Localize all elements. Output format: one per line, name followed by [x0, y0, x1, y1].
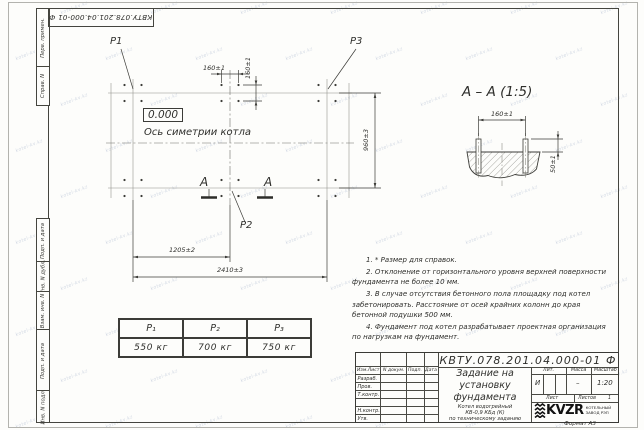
tb-header-podp: Подп. — [408, 368, 422, 373]
tb-header-izm-list: Изм.Лист — [357, 368, 379, 373]
tb-row-utv: Утв. — [358, 416, 369, 422]
company-logo: KVZR КОТЕЛЬНЫЙ ЗАВОД РЭП — [534, 403, 611, 418]
tb-scale-header: Масштаб — [594, 368, 617, 373]
load-point-p1-label: P1 — [110, 36, 122, 47]
kvzr-logo-icon — [534, 403, 546, 418]
load-table-value-p3: 750 кг — [247, 338, 311, 357]
document-subtitle: Котел водогрейный КВ-0,9 КБд (К) по техн… — [439, 405, 531, 422]
section-mark-letter-left: А — [200, 175, 208, 189]
tb-mass-value: – — [576, 379, 580, 387]
load-point-p3-label: P3 — [350, 36, 362, 47]
title-block: КВТУ.078.201.04.000-01 Ф Изм.Лист N доку… — [355, 352, 619, 423]
tb-row-prov: Пров. — [358, 384, 373, 390]
format-label: Формат А3 — [540, 421, 620, 427]
note-1: 1. * Размер для справок. — [352, 255, 614, 266]
dim-2410: 2410±3 — [200, 266, 260, 274]
title-line: установку — [459, 380, 510, 392]
title-line: фундамента — [454, 392, 517, 404]
technical-notes: 1. * Размер для справок. 2. Отклонение о… — [352, 255, 614, 344]
note-2: 2. Отклонение от горизонтального уровня … — [352, 267, 614, 288]
dim-160-horizontal: 160±1 — [196, 64, 232, 72]
load-table-header-p1: P₁ — [119, 319, 183, 338]
tb-sheets-label: Листов — [578, 396, 596, 401]
dim-1205: 1205±2 — [152, 246, 212, 254]
drawing-sheet: kotel-kv.kzkotel-kv.kzkotel-kv.kzkotel-k… — [0, 0, 644, 430]
tb-row-tkontr: Т.контр. — [358, 392, 380, 398]
load-table-header-p2: P₂ — [183, 319, 247, 338]
load-table: P₁ P₂ P₃ 550 кг 700 кг 750 кг — [118, 318, 312, 358]
document-title: Задание на установку фундамента — [439, 368, 531, 406]
section-mark-letter-right: А — [264, 175, 272, 189]
tb-scale-value: 1:20 — [597, 379, 613, 387]
subtitle-line: по техническому заданию — [439, 417, 531, 423]
section-cut-marks — [201, 189, 273, 198]
logo-subtext: КОТЕЛЬНЫЙ ЗАВОД РЭП — [586, 406, 612, 415]
tb-lit-header: Лит. — [543, 368, 554, 373]
tb-row-razrab: Разраб. — [358, 376, 378, 382]
load-table-header-p3: P₃ — [247, 319, 311, 338]
load-point-p2-label: P2 — [240, 220, 252, 231]
tb-header-n-dokum: N докум. — [383, 368, 404, 373]
tb-row-nkontr: Н.контр. — [358, 408, 380, 414]
doc-number: КВТУ.078.201.04.000-01 Ф — [438, 353, 618, 367]
logo-sub-line: ЗАВОД РЭП — [586, 411, 612, 415]
tb-sheets-value: 1 — [608, 396, 611, 401]
title-line: Задание на — [456, 368, 514, 380]
tb-lit-value: И — [535, 379, 540, 387]
note-4: 4. Фундамент под котел разрабатывает про… — [352, 322, 614, 343]
section-view-title: А – А (1:5) — [462, 84, 532, 100]
section-dim-160: 160±1 — [486, 110, 518, 118]
load-table-value-p1: 550 кг — [119, 338, 183, 357]
dim-160-vertical: 160±1 — [244, 53, 252, 83]
logo-text: KVZR — [546, 404, 584, 417]
note-3: 3. В случае отсутствия бетонного пола пл… — [352, 289, 614, 321]
load-table-value-p2: 700 кг — [183, 338, 247, 357]
dim-960: 960±3 — [362, 122, 370, 158]
section-dim-50: 50±1 — [549, 151, 557, 177]
tb-sheet-label: Лист — [546, 396, 558, 401]
symmetry-axis-label: Ось симетрии котла — [144, 127, 251, 138]
tb-header-data: Дата — [425, 368, 437, 373]
level-mark: 0.000 — [143, 108, 183, 122]
tb-mass-header: Масса — [571, 368, 586, 373]
